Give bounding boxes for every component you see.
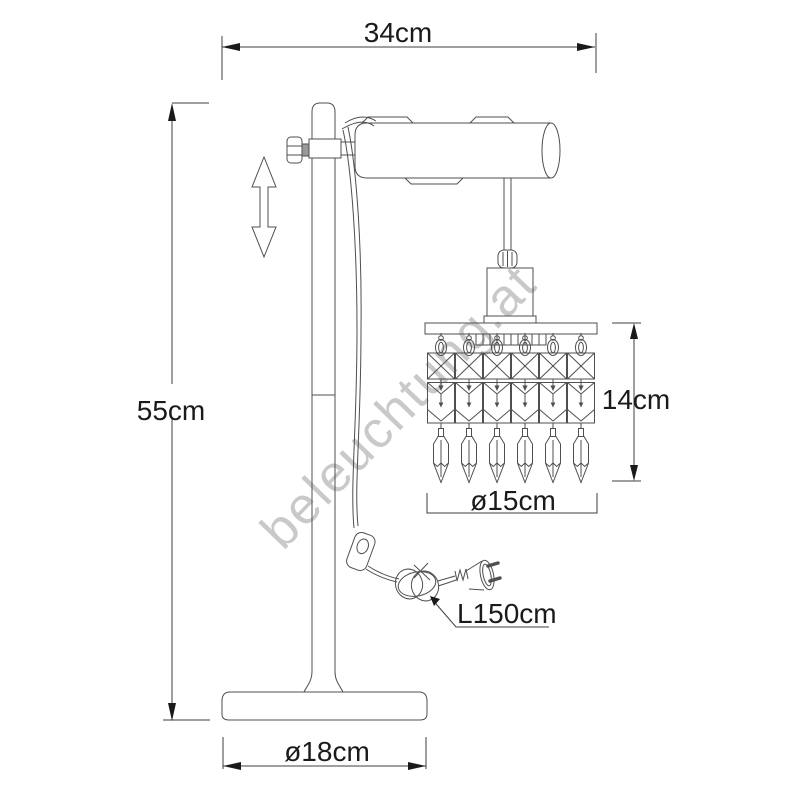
left-height-dimension: 55cm <box>137 103 210 721</box>
total-width-label: 34cm <box>364 17 432 48</box>
top-width-dimension: 34cm <box>222 17 596 80</box>
crystal-strand <box>540 333 567 483</box>
cable-coil <box>366 563 456 604</box>
crystal-strand <box>512 333 539 483</box>
base-diameter-label: ø18cm <box>284 736 370 767</box>
pendant-height-label: 14cm <box>602 384 670 415</box>
crystal-strand <box>568 333 595 483</box>
lamp-base <box>222 672 427 720</box>
height-adjust-arrow-icon <box>252 157 276 257</box>
lamp-pole <box>312 103 335 672</box>
dimension-diagram: beleuchtung.at <box>0 0 800 800</box>
euro-plug <box>455 559 500 591</box>
pendant-height-dimension: 14cm <box>602 323 670 481</box>
total-height-label: 55cm <box>137 395 205 426</box>
cable-length-callout: L150cm <box>430 596 557 629</box>
cable-length-label: L150cm <box>457 598 557 629</box>
lamp-drawing-svg: beleuchtung.at <box>0 0 800 800</box>
pendant-diameter-dimension: ø15cm <box>427 485 597 516</box>
lamp-head <box>355 117 560 184</box>
pendant-diameter-label: ø15cm <box>470 485 556 516</box>
base-diameter-dimension: ø18cm <box>223 736 426 770</box>
inline-switch <box>345 530 377 572</box>
